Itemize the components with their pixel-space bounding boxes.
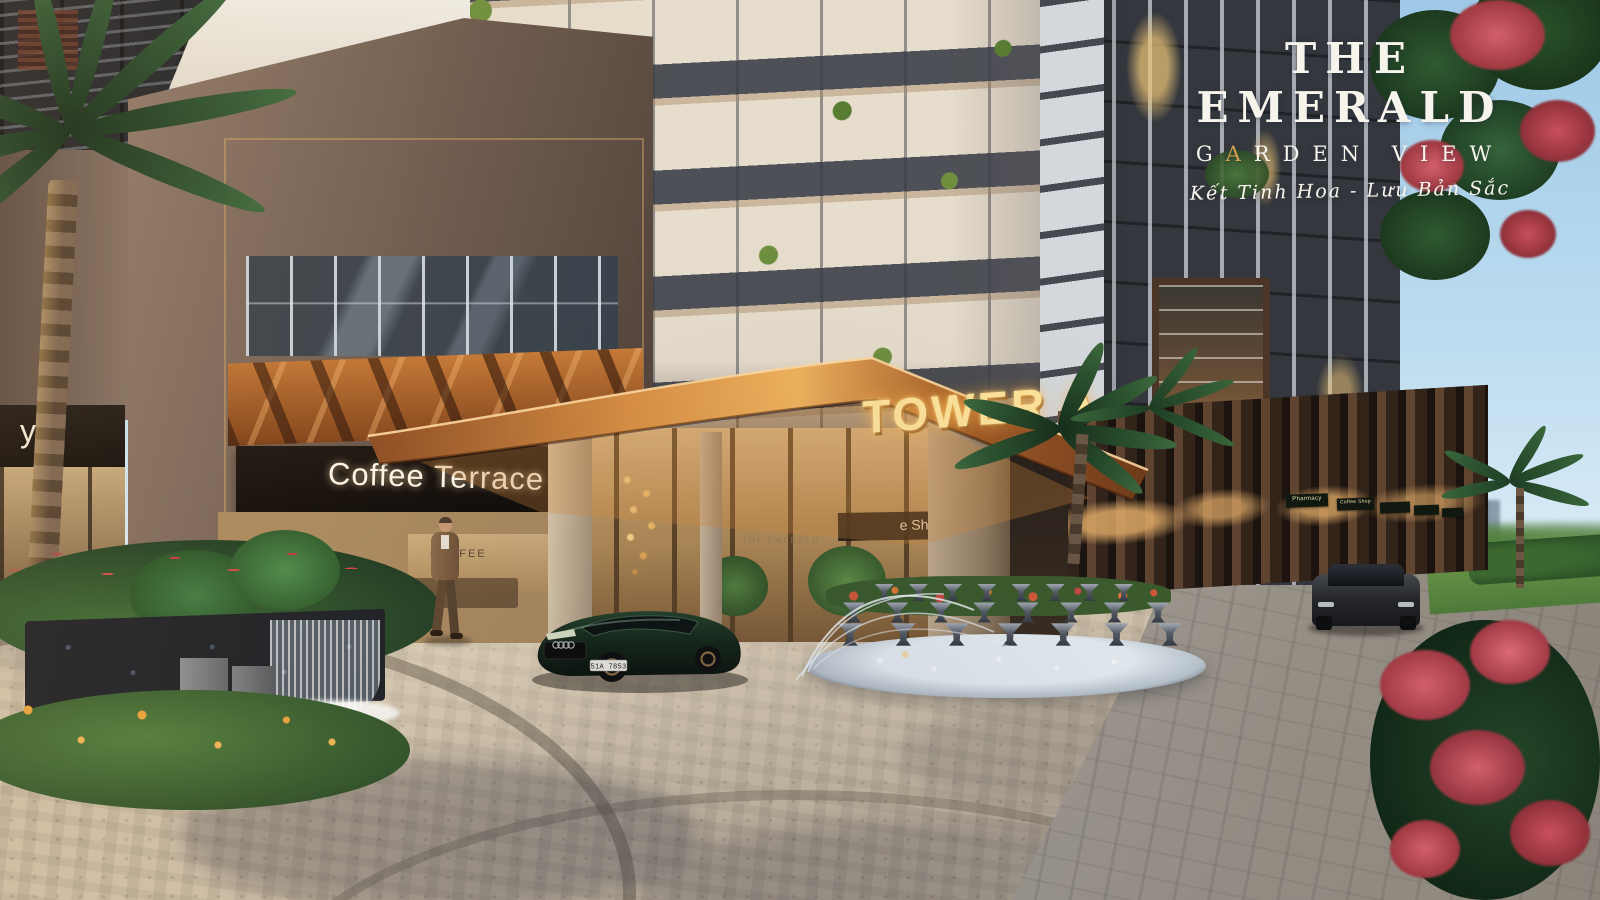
fountain-spout [909,584,929,601]
car2-headlight [1318,602,1334,607]
man-shirt [441,535,449,549]
fountain-spout-row-back [874,584,1133,601]
car2-headlight [1398,602,1414,607]
logo-subtitle-g: G [1196,142,1226,166]
logo-tagline: Kết Tinh Hoa - Lưu Bản Sắc [1150,177,1550,206]
brand-logo: THE EMERALD GARDEN VIEW Kết Tinh Hoa - L… [1150,34,1550,202]
car2-body [1312,574,1420,626]
fountain-spout [977,584,997,601]
red-blossoms [1430,730,1525,805]
man-leg [446,580,460,635]
fountain-spout-row-middle [843,603,1170,623]
green-sedan: 51A 7853 [520,566,760,698]
fountain-spout [944,623,970,646]
fountain-spout [1147,603,1170,623]
logo-gold-a: A [1226,142,1254,166]
fountain-spout [1114,584,1134,601]
fountain-spout-row-front [837,623,1183,646]
fountain-spout [1104,623,1130,646]
shop-sign-pharmacy: Pharmacy [1286,493,1328,507]
fountain-spout [843,603,866,623]
logo-title: THE EMERALD [1150,34,1550,132]
fountain-spout [943,584,963,601]
fountain-spout [1157,623,1183,646]
red-blossoms [1390,820,1460,878]
shop-sign-label: Pharmacy [1292,495,1322,502]
fountain-spout [886,603,909,623]
logo-subtitle: GARDEN VIEW [1150,142,1550,166]
man-suit-torso [431,532,459,582]
man-head [439,518,452,532]
fountain-spout [1103,603,1126,623]
shop-sign-blank [1380,501,1410,513]
fountain-spout [973,603,996,623]
palm-frond [66,121,270,222]
lobby-shop-sign: e Shop [838,511,958,541]
fountain-spout [1045,584,1065,601]
lobby-shop-sign-label: e Shop [899,516,944,533]
palm-frond [1508,476,1590,510]
pedestrian-man [424,516,472,648]
palm-frond [1508,450,1585,488]
fountain-spout [1016,603,1039,623]
fountain-spout [1060,603,1083,623]
architectural-render: Pharmacy Coffee Shop y Coffee Terrace CO… [0,0,1600,900]
man-hair [439,517,452,523]
fountain-spout [837,623,863,646]
man-shadow [424,636,472,646]
shop-sign-label: Coffee Shop [1340,498,1371,505]
fountain-spout [890,623,916,646]
lobby-wall-logo-text: THE EMERALD [742,536,820,545]
monstera-leaves [230,530,340,610]
fountain-spout [1080,584,1100,601]
red-blossoms [1500,210,1556,258]
red-blossoms [1510,800,1590,866]
logo-subtitle-rest: RDEN VIEW [1254,142,1504,166]
red-ginger-flowers [0,530,410,610]
fountain-spout [1011,584,1031,601]
car2-wheel [1400,616,1416,630]
license-plate-number: 51A 7853 [590,664,626,672]
car2-windshield [1328,564,1404,586]
bush-foliage [1370,620,1600,900]
man-shoe [450,633,463,639]
fountain-spout [997,623,1023,646]
palm-frond [1505,423,1550,485]
stone-waterfall-wall [25,609,385,714]
shop-sign-coffee-shop: Coffee Shop [1337,497,1374,510]
lobby-chandelier [608,466,672,581]
car2-shadow [1308,620,1424,636]
car-grille [544,642,586,659]
red-blossoms [1470,620,1550,684]
shop-sign-blank [1442,508,1463,518]
man-shoe [430,630,443,636]
foreground-palm [0,0,360,610]
shop-sign-blank [1414,505,1439,516]
grey-sedan [1306,552,1426,642]
fountain-spout [1050,623,1076,646]
man-leg [432,580,447,633]
car-wheel-rear [695,646,721,672]
fountain-spout [929,603,952,623]
car2-wheel [1316,616,1332,630]
planting-bed [0,520,460,860]
fountain-spout [874,584,894,601]
coffee-terrace-sign: Coffee Terrace [328,456,545,498]
red-blossoms [1380,650,1470,720]
